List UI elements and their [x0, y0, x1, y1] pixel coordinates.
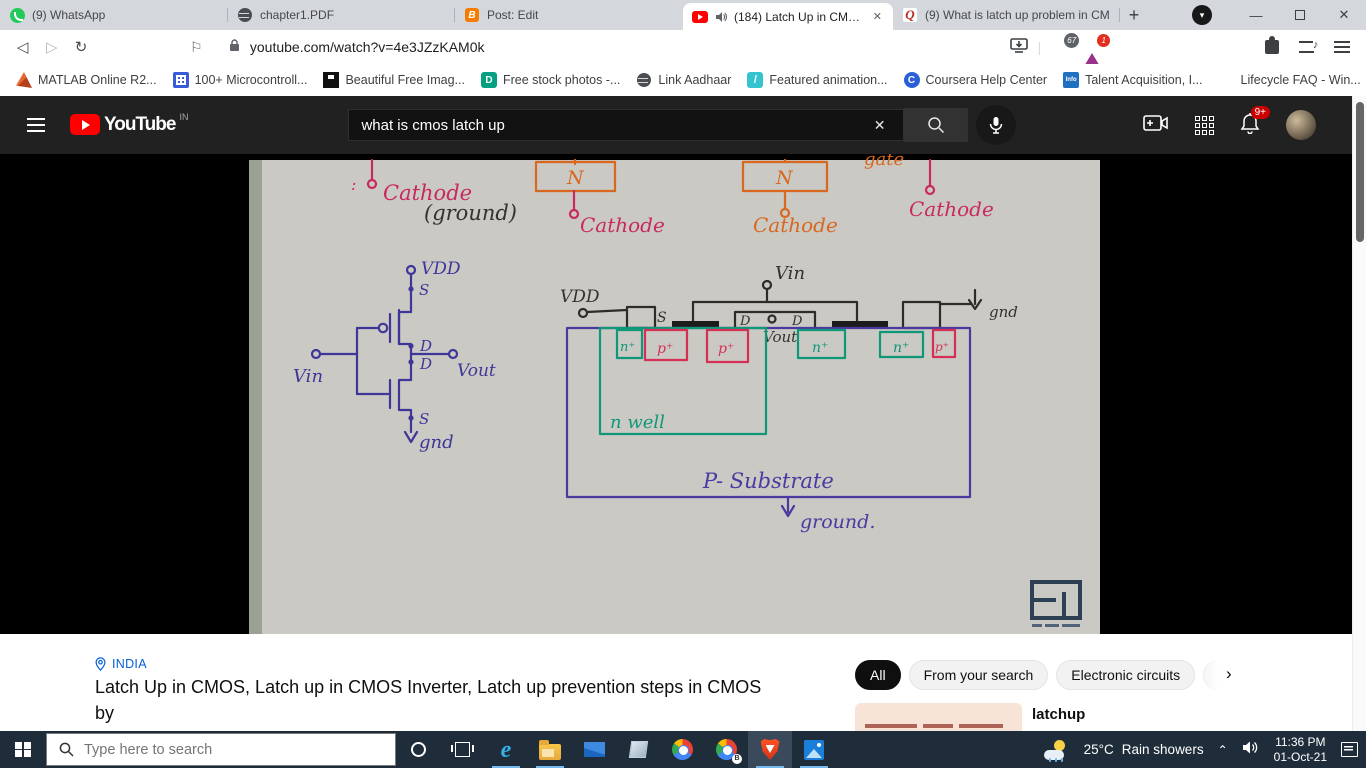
svg-text:Vin: Vin [775, 263, 805, 284]
bookmark-unsplash[interactable]: Beautiful Free Imag... [317, 68, 471, 92]
search-input[interactable] [361, 117, 867, 134]
forward-button[interactable]: ▷ [37, 38, 66, 56]
search-button[interactable] [904, 108, 968, 142]
whiteboard-frame: : Cathode (ground) N Cathode N Cathode [0, 154, 1352, 634]
task-view-icon [455, 742, 470, 757]
brave-shield-icon[interactable]: 67 [1051, 37, 1073, 57]
taskbar-search[interactable] [46, 733, 396, 766]
tab-title: Post: Edit [487, 8, 674, 22]
bookmark-stock-photos[interactable]: DFree stock photos -... [475, 68, 626, 92]
tab-youtube-active[interactable]: (184) Latch Up in CMOS, La ✕ [683, 3, 893, 30]
svg-text:gate: gate [864, 154, 904, 170]
tab-title: (9) What is latch up problem in CM [925, 8, 1111, 22]
taskbar-file-explorer[interactable] [528, 731, 572, 768]
maximize-button[interactable] [1278, 0, 1322, 30]
tab-title: (184) Latch Up in CMOS, La [734, 10, 864, 24]
clear-search-icon[interactable]: ✕ [868, 117, 892, 134]
svg-text:gnd: gnd [989, 303, 1018, 321]
youtube-menu-icon[interactable] [27, 124, 45, 126]
cortana-icon [411, 742, 426, 757]
svg-text:S: S [657, 310, 667, 326]
voice-search-button[interactable] [976, 105, 1016, 145]
tab-close-icon[interactable]: ✕ [871, 10, 884, 23]
photos-icon [804, 740, 824, 760]
location-pin-icon [95, 657, 106, 671]
mail-icon [584, 742, 605, 757]
bookmark-featured-animation[interactable]: /Featured animation... [741, 68, 893, 92]
media-playlist-icon[interactable] [1299, 41, 1315, 53]
weather-icon[interactable] [1044, 740, 1070, 760]
youtube-search: ✕ [348, 105, 1016, 145]
related-video-title: latchup [1032, 706, 1085, 723]
svg-text:(ground): (ground) [424, 201, 517, 225]
svg-text:ground.: ground. [800, 511, 875, 533]
close-window-button[interactable]: ✕ [1322, 0, 1366, 30]
profile-badge: B [732, 754, 742, 764]
svg-text:Cathode: Cathode [909, 197, 994, 221]
youtube-favicon [692, 9, 708, 25]
svg-text:S: S [419, 281, 429, 299]
svg-text:N: N [566, 167, 585, 189]
address-bar[interactable]: youtube.com/watch?v=4e3JZzKAM0k | 67 1 [213, 33, 1115, 61]
weather-condition: Rain showers [1122, 742, 1204, 757]
url-text: youtube.com/watch?v=4e3JZzKAM0k [250, 39, 485, 55]
temperature: 25°C [1084, 742, 1114, 757]
brave-icon [761, 739, 780, 760]
bookmark-microcontrollers[interactable]: 100+ Microcontroll... [167, 68, 314, 92]
svg-text::: : [351, 175, 356, 194]
browser-toolbar: ◁ ▷ ↻ ⚐ youtube.com/watch?v=4e3JZzKAM0k … [0, 30, 1366, 64]
screen: (9) WhatsApp chapter1.PDF B Post: Edit (… [0, 0, 1366, 768]
youtube-logo[interactable]: YouTube IN [70, 114, 188, 136]
bookmark-label: Beautiful Free Imag... [345, 73, 465, 87]
bookmark-label: Free stock photos -... [503, 73, 620, 87]
tab-blogger-post-edit[interactable]: B Post: Edit [455, 0, 683, 30]
system-tray: 25°C Rain showers ⌃ 11:36 PM 01-Oct-21 [1044, 735, 1366, 765]
bookmarks-bar: MATLAB Online R2... 100+ Microcontroll..… [0, 64, 1366, 96]
taskbar-photos[interactable] [792, 731, 836, 768]
tab-chapter1-pdf[interactable]: chapter1.PDF [228, 0, 455, 30]
svg-text:Vout: Vout [457, 361, 496, 381]
bookmark-label: Link Aadhaar [658, 73, 731, 87]
weather-text[interactable]: 25°C Rain showers [1084, 742, 1204, 757]
window-controls: ▾ — ✕ [1192, 0, 1366, 30]
bookmark-talent-acquisition[interactable]: InfoTalent Acquisition, I... [1057, 68, 1208, 92]
start-button[interactable] [0, 731, 46, 768]
youtube-masthead: YouTube IN ✕ 9+ [0, 96, 1352, 154]
location-label: INDIA [112, 657, 147, 671]
time: 11:36 PM [1274, 735, 1327, 750]
mic-icon [988, 116, 1004, 134]
svg-text:Cathode: Cathode [753, 213, 838, 237]
avatar[interactable] [1286, 110, 1316, 140]
chip-all[interactable]: All [855, 660, 901, 690]
taskbar-search-input[interactable] [84, 742, 383, 758]
tab-title: (9) WhatsApp [32, 8, 219, 22]
clock[interactable]: 11:36 PM 01-Oct-21 [1274, 735, 1327, 765]
svg-text:Cathode: Cathode [580, 213, 665, 237]
svg-text:S: S [419, 410, 429, 428]
filter-chips: All From your search Electronic circuits [855, 660, 1219, 690]
lock-icon [229, 39, 240, 55]
scrollbar-thumb[interactable] [1356, 102, 1364, 242]
cortana-button[interactable] [396, 731, 440, 768]
tab-search-button[interactable]: ▾ [1192, 5, 1212, 25]
search-icon [59, 742, 74, 757]
coursera-icon: C [904, 72, 920, 88]
bookmark-label: Coursera Help Center [926, 73, 1048, 87]
minimize-button[interactable]: — [1234, 0, 1278, 30]
internet-explorer-icon: e [501, 738, 512, 762]
windows-logo-icon [15, 742, 31, 758]
svg-text:D: D [739, 314, 751, 329]
svg-text:p⁺: p⁺ [935, 340, 949, 354]
svg-text:gnd: gnd [419, 432, 454, 453]
new-tab-button[interactable]: + [1120, 0, 1148, 30]
reload-button[interactable]: ↻ [66, 38, 95, 56]
tab-audio-icon [715, 11, 727, 23]
bookmark-label: Featured animation... [769, 73, 887, 87]
volume-icon[interactable] [1242, 740, 1260, 760]
extensions-icon[interactable] [1265, 40, 1279, 54]
taskbar-mail[interactable] [572, 731, 616, 768]
maximize-icon [1295, 10, 1305, 20]
chrome-icon [672, 739, 693, 760]
svg-text:VDD: VDD [560, 287, 600, 307]
youtube-apps-icon[interactable] [1195, 116, 1214, 135]
svg-text:n well: n well [610, 412, 665, 433]
quora-icon: Q [902, 7, 918, 23]
svg-text:Vin: Vin [293, 366, 323, 387]
file-explorer-icon [539, 744, 561, 760]
browser-menu-icon[interactable] [1334, 41, 1350, 53]
youtube-play-icon [70, 114, 100, 135]
svg-text:n⁺: n⁺ [620, 340, 635, 355]
bookmark-flag-icon[interactable]: ⚐ [182, 39, 211, 56]
action-center-icon[interactable] [1341, 742, 1358, 757]
windows-taskbar: e B 25°C Rain showers ⌃ 11:36 PM 01-Oct-… [0, 731, 1366, 768]
taskbar-chrome-profile[interactable]: B [704, 731, 748, 768]
shield-badge: 67 [1064, 33, 1079, 48]
svg-text:D: D [419, 337, 432, 355]
tab-quora[interactable]: Q (9) What is latch up problem in CM [893, 0, 1120, 30]
bookmark-matlab[interactable]: MATLAB Online R2... [10, 68, 163, 92]
infosys-icon: Info [1063, 72, 1079, 88]
video-player[interactable]: : Cathode (ground) N Cathode N Cathode [0, 154, 1352, 634]
taskbar-internet-explorer[interactable]: e [484, 731, 528, 768]
svg-text:n⁺: n⁺ [893, 340, 909, 356]
slash-icon: / [747, 72, 763, 88]
search-icon [926, 115, 946, 135]
bookmark-label: 100+ Microcontroll... [195, 73, 308, 87]
chip-from-your-search[interactable]: From your search [909, 660, 1049, 690]
matlab-icon [16, 72, 32, 88]
taskbar-chrome[interactable] [660, 731, 704, 768]
unsplash-icon [323, 72, 339, 88]
notification-badge: 9+ [1251, 106, 1270, 119]
bookmark-lifecycle-faq[interactable]: Lifecycle FAQ - Win... [1213, 68, 1366, 92]
browser-tab-strip: (9) WhatsApp chapter1.PDF B Post: Edit (… [0, 0, 1366, 30]
svg-text:D: D [419, 355, 432, 373]
chips-next-icon[interactable]: › [1226, 664, 1232, 684]
rewards-badge: 1 [1097, 34, 1110, 47]
video-title-line1: Latch Up in CMOS, Latch up in CMOS Inver… [95, 674, 785, 726]
watch-page-info: INDIA Latch Up in CMOS, Latch up in CMOS… [0, 634, 1352, 731]
svg-text:Vout: Vout [763, 328, 798, 346]
masthead-actions: 9+ [1143, 110, 1352, 140]
globe-icon [636, 72, 652, 88]
date: 01-Oct-21 [1274, 750, 1327, 765]
create-video-icon[interactable] [1143, 114, 1169, 137]
svg-text:p⁺: p⁺ [657, 341, 673, 357]
download-icon[interactable] [1010, 38, 1028, 57]
svg-text:p⁺: p⁺ [718, 341, 734, 357]
location-row[interactable]: INDIA [95, 657, 147, 671]
youtube-region: IN [179, 112, 188, 122]
svg-text:N: N [775, 167, 794, 189]
bookmark-coursera[interactable]: CCoursera Help Center [898, 68, 1054, 92]
microsoft-icon [1219, 72, 1235, 88]
taskbar-brave-active[interactable] [748, 731, 792, 768]
bookmark-label: Lifecycle FAQ - Win... [1241, 73, 1361, 87]
bookmark-link-aadhaar[interactable]: Link Aadhaar [630, 68, 737, 92]
back-button[interactable]: ◁ [8, 38, 37, 56]
page-scrollbar[interactable] [1352, 96, 1366, 731]
related-video-thumbnail[interactable] [855, 703, 1022, 731]
bookmark-label: MATLAB Online R2... [38, 73, 157, 87]
tab-whatsapp[interactable]: (9) WhatsApp [0, 0, 228, 30]
task-view-button[interactable] [440, 731, 484, 768]
grid-icon [173, 72, 189, 88]
svg-text:VDD: VDD [421, 259, 461, 279]
blogger-icon: B [464, 7, 480, 23]
taskbar-notepad[interactable] [616, 731, 660, 768]
svg-text:n⁺: n⁺ [812, 340, 828, 356]
tray-overflow-icon[interactable]: ⌃ [1218, 743, 1228, 757]
tab-title: chapter1.PDF [260, 8, 446, 22]
pexels-icon: D [481, 72, 497, 88]
youtube-wordmark: YouTube [104, 114, 175, 136]
svg-text:P- Substrate: P- Substrate [702, 469, 834, 493]
notifications-icon[interactable]: 9+ [1240, 112, 1260, 139]
svg-text:D: D [791, 314, 803, 329]
search-box[interactable]: ✕ [348, 109, 904, 141]
bookmark-label: Talent Acquisition, I... [1085, 73, 1202, 87]
chip-electronic-circuits[interactable]: Electronic circuits [1056, 660, 1195, 690]
brave-rewards-icon[interactable]: 1 [1083, 37, 1105, 57]
globe-icon [237, 7, 253, 23]
notepad-icon [628, 741, 647, 758]
whatsapp-icon [9, 7, 25, 23]
